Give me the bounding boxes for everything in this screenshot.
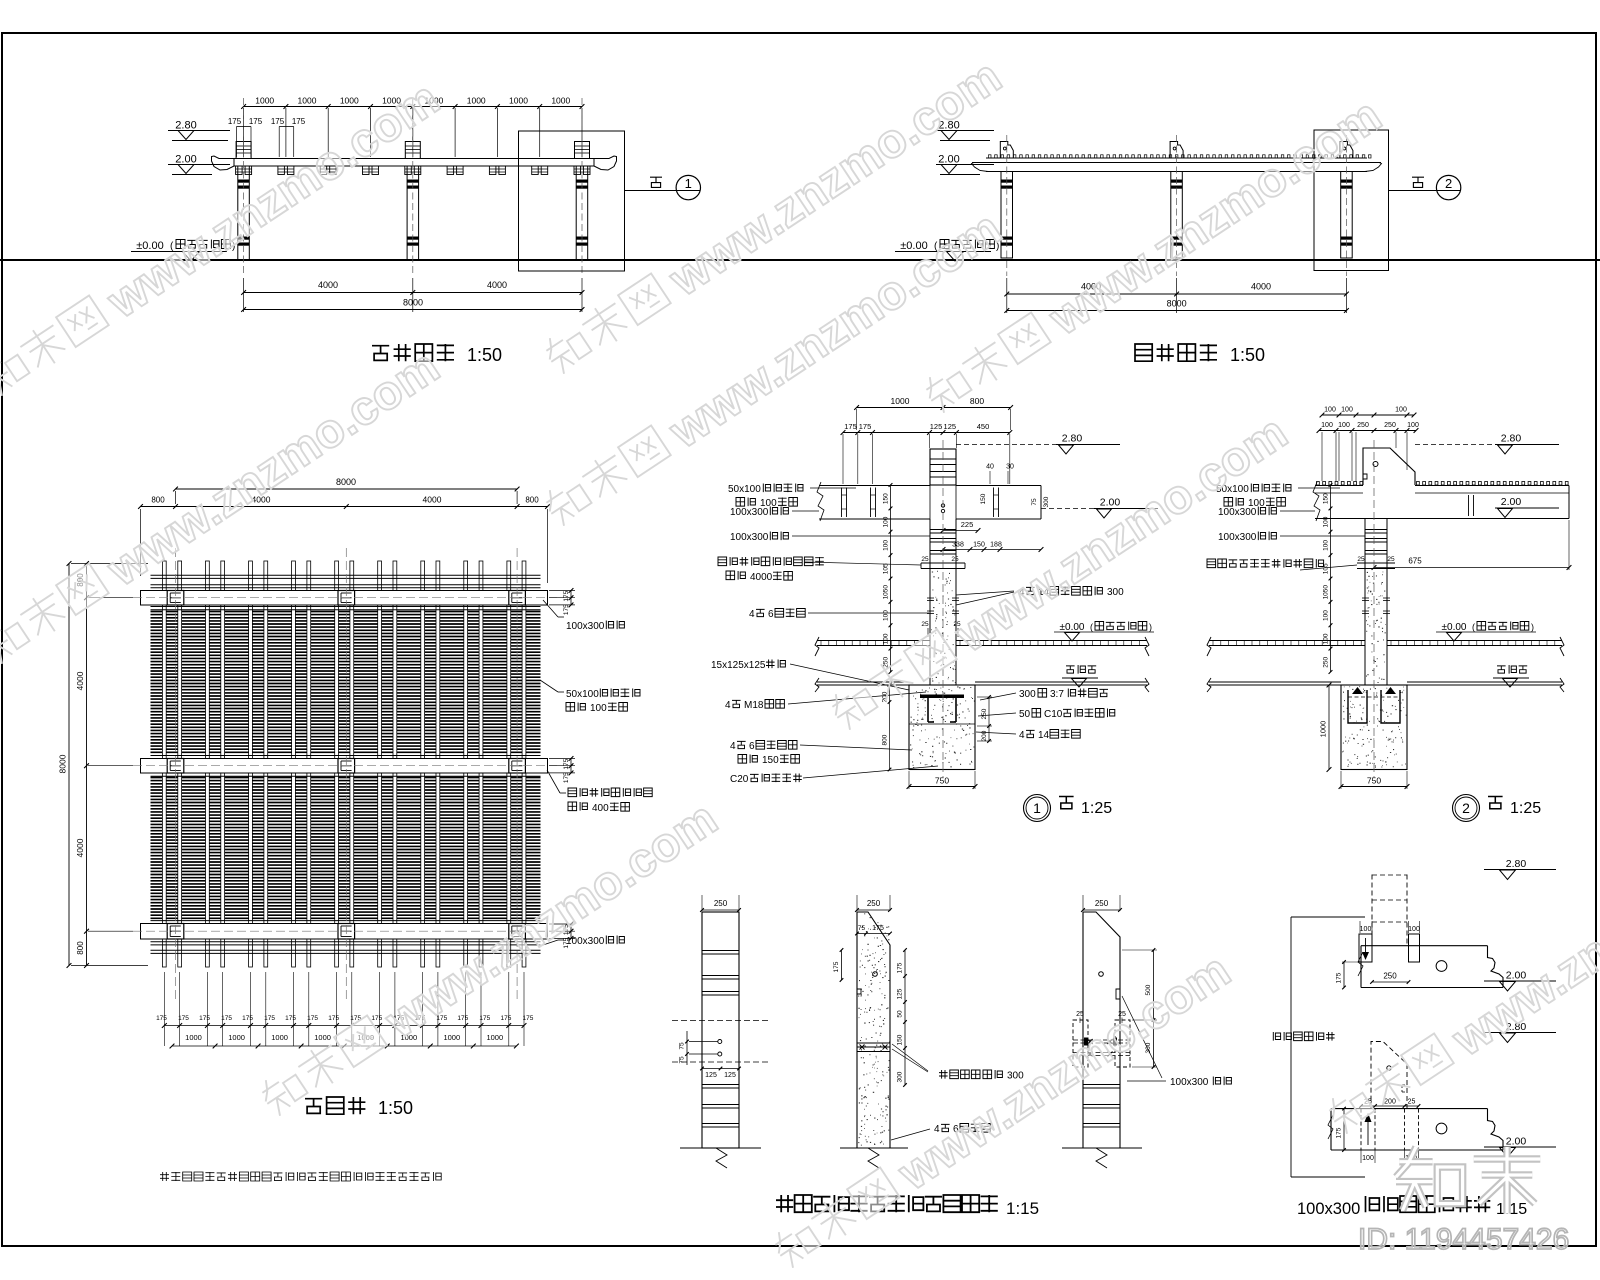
svg-text:±0.00: ±0.00 <box>1060 622 1085 633</box>
svg-text:100x300: 100x300 <box>730 507 769 518</box>
svg-text:ID: 1194457426: ID: 1194457426 <box>1358 1223 1569 1256</box>
svg-text:50x100: 50x100 <box>728 484 761 495</box>
svg-text:1000: 1000 <box>255 96 274 106</box>
svg-text:175: 175 <box>328 1015 339 1022</box>
svg-text:125: 125 <box>705 1072 717 1079</box>
svg-text:100x300: 100x300 <box>566 621 605 632</box>
svg-text:125: 125 <box>724 1072 736 1079</box>
svg-text:338: 338 <box>952 542 964 549</box>
svg-text:C10: C10 <box>1044 709 1063 720</box>
svg-text:2.80: 2.80 <box>1506 858 1527 870</box>
svg-text:105: 105 <box>883 563 890 574</box>
svg-text:8000: 8000 <box>403 298 423 308</box>
svg-text:200: 200 <box>1384 1099 1396 1106</box>
svg-text:250: 250 <box>1384 422 1396 429</box>
svg-text:200: 200 <box>981 730 988 741</box>
svg-text:): ) <box>1531 622 1534 632</box>
svg-text:8000: 8000 <box>1167 299 1187 309</box>
svg-text:50: 50 <box>1019 709 1031 720</box>
svg-text:150: 150 <box>883 493 890 504</box>
svg-text:100x300: 100x300 <box>1170 1077 1209 1088</box>
svg-text:1000: 1000 <box>314 1033 331 1042</box>
svg-text:150: 150 <box>980 493 987 504</box>
svg-text:1000: 1000 <box>891 396 910 406</box>
svg-text:800: 800 <box>970 396 984 406</box>
svg-text:2.80: 2.80 <box>1062 433 1083 445</box>
svg-text:3:7: 3:7 <box>1050 689 1064 700</box>
svg-text:2.00: 2.00 <box>938 154 959 166</box>
svg-text:175: 175 <box>228 117 242 126</box>
svg-text:175: 175 <box>264 1015 275 1022</box>
svg-text:100x300: 100x300 <box>1218 507 1257 518</box>
svg-text:188: 188 <box>990 542 1002 549</box>
svg-text:1:50: 1:50 <box>467 345 502 365</box>
svg-text:300: 300 <box>1019 689 1036 700</box>
svg-text:175: 175 <box>897 962 904 973</box>
svg-text:25: 25 <box>1387 556 1395 563</box>
svg-text:175: 175 <box>199 1015 210 1022</box>
svg-text:175: 175 <box>833 961 840 972</box>
svg-text:175: 175 <box>563 604 570 615</box>
svg-text:1000: 1000 <box>298 96 317 106</box>
svg-text:100: 100 <box>1407 422 1419 429</box>
svg-text:175: 175 <box>844 422 857 431</box>
svg-text:4: 4 <box>1019 730 1025 741</box>
svg-text:100: 100 <box>1321 422 1333 429</box>
svg-text:100x300: 100x300 <box>730 532 769 543</box>
svg-text:175: 175 <box>285 1015 296 1022</box>
svg-text:4000: 4000 <box>423 495 442 505</box>
svg-text:1000: 1000 <box>228 1033 245 1042</box>
svg-text:1:50: 1:50 <box>378 1098 413 1118</box>
svg-text:800: 800 <box>151 496 165 505</box>
svg-text:100: 100 <box>1395 407 1407 414</box>
svg-text:1:25: 1:25 <box>1510 800 1541 817</box>
svg-text:1000: 1000 <box>551 96 570 106</box>
svg-text:300: 300 <box>1107 587 1124 598</box>
svg-text:25: 25 <box>1408 1099 1416 1106</box>
svg-text:75: 75 <box>679 1042 686 1050</box>
svg-text:1050: 1050 <box>883 585 890 600</box>
svg-text:6: 6 <box>768 609 774 620</box>
svg-text:225: 225 <box>961 520 974 529</box>
svg-text:150: 150 <box>762 755 779 766</box>
svg-text:250: 250 <box>1323 656 1330 667</box>
svg-text:175: 175 <box>522 1015 533 1022</box>
svg-text:125: 125 <box>944 422 957 431</box>
svg-text:1000: 1000 <box>185 1033 202 1042</box>
svg-text:175: 175 <box>178 1015 189 1022</box>
svg-text:100: 100 <box>1324 407 1336 414</box>
svg-text:4000: 4000 <box>318 280 338 290</box>
svg-text:8000: 8000 <box>336 477 356 487</box>
svg-text:2.00: 2.00 <box>1501 496 1522 508</box>
svg-text:175: 175 <box>156 1015 167 1022</box>
svg-text:100x300: 100x300 <box>1218 532 1257 543</box>
svg-text:1:15: 1:15 <box>1496 1201 1527 1218</box>
svg-text:1000: 1000 <box>271 1033 288 1042</box>
svg-text:15x125x125: 15x125x125 <box>711 660 766 671</box>
svg-text:1:25: 1:25 <box>1081 800 1112 817</box>
svg-text:75: 75 <box>679 1056 686 1064</box>
svg-text:2: 2 <box>1462 800 1470 816</box>
svg-text:150: 150 <box>897 1034 904 1045</box>
svg-text:4000: 4000 <box>750 572 773 583</box>
svg-text:6: 6 <box>749 741 755 752</box>
svg-text:175: 175 <box>249 117 263 126</box>
svg-text:50: 50 <box>897 1010 904 1018</box>
svg-text:1000: 1000 <box>340 96 359 106</box>
svg-text:175: 175 <box>563 772 570 783</box>
svg-text:100: 100 <box>1323 610 1330 621</box>
svg-text:400: 400 <box>592 803 609 814</box>
svg-text:14: 14 <box>1038 730 1050 741</box>
svg-text:100: 100 <box>1323 540 1330 551</box>
svg-text:300: 300 <box>897 1071 904 1082</box>
svg-text:4: 4 <box>730 741 736 752</box>
svg-text:25: 25 <box>951 556 959 563</box>
svg-text:1000: 1000 <box>1319 721 1328 738</box>
svg-text:800: 800 <box>76 941 85 955</box>
svg-text:175: 175 <box>221 1015 232 1022</box>
svg-text:2: 2 <box>1445 176 1452 191</box>
svg-text:1000: 1000 <box>443 1033 460 1042</box>
svg-text:175: 175 <box>1336 972 1343 983</box>
svg-text:M18: M18 <box>744 700 764 711</box>
svg-text:4000: 4000 <box>1251 282 1271 292</box>
svg-text:175: 175 <box>371 1015 382 1022</box>
svg-text:2.00: 2.00 <box>1506 1136 1527 1148</box>
svg-text:100: 100 <box>1323 633 1330 644</box>
svg-text:175: 175 <box>859 422 872 431</box>
svg-text:175: 175 <box>292 117 306 126</box>
svg-text:175: 175 <box>479 1015 490 1022</box>
svg-text:100: 100 <box>883 516 890 527</box>
svg-text:175: 175 <box>500 1015 511 1022</box>
svg-text:150: 150 <box>1323 493 1330 504</box>
svg-text:250: 250 <box>714 899 728 908</box>
svg-text:2.00: 2.00 <box>175 154 196 166</box>
svg-text:25: 25 <box>1357 556 1365 563</box>
svg-text:250: 250 <box>1357 422 1369 429</box>
svg-text:50x100: 50x100 <box>566 689 599 700</box>
svg-text:25: 25 <box>1076 1011 1084 1018</box>
svg-text:40: 40 <box>986 464 994 471</box>
svg-text:(: ( <box>1090 622 1093 632</box>
svg-text:100: 100 <box>1338 422 1350 429</box>
svg-text:): ) <box>1149 622 1152 632</box>
svg-text:175: 175 <box>457 1015 468 1022</box>
svg-text:25: 25 <box>921 621 929 628</box>
svg-text:C20: C20 <box>730 774 749 785</box>
svg-text:250: 250 <box>981 708 988 719</box>
svg-text:100: 100 <box>590 703 607 714</box>
svg-text:75: 75 <box>858 925 866 932</box>
svg-text:4: 4 <box>749 609 755 620</box>
svg-text:75: 75 <box>1031 498 1038 506</box>
svg-text:250: 250 <box>867 899 881 908</box>
svg-text:100: 100 <box>883 610 890 621</box>
svg-text:100: 100 <box>1408 926 1420 933</box>
svg-text:1000: 1000 <box>467 96 486 106</box>
svg-text:2.80: 2.80 <box>1501 433 1522 445</box>
svg-text:100: 100 <box>1362 1155 1374 1162</box>
svg-text:1050: 1050 <box>1323 585 1330 600</box>
svg-text:2.80: 2.80 <box>175 120 196 132</box>
svg-text:4: 4 <box>725 700 731 711</box>
svg-text:750: 750 <box>935 776 949 786</box>
svg-text:150: 150 <box>973 542 985 549</box>
svg-text:175: 175 <box>1336 1127 1343 1138</box>
svg-text:175: 175 <box>307 1015 318 1022</box>
svg-text:1: 1 <box>685 176 692 191</box>
svg-text:125: 125 <box>897 988 904 999</box>
svg-text:125: 125 <box>930 422 943 431</box>
svg-text:250: 250 <box>883 656 890 667</box>
svg-text:100: 100 <box>1341 407 1353 414</box>
svg-text:800: 800 <box>882 734 889 745</box>
svg-text:450: 450 <box>977 422 990 431</box>
svg-text:800: 800 <box>525 496 539 505</box>
svg-text:1000: 1000 <box>509 96 528 106</box>
svg-text:175: 175 <box>563 758 570 769</box>
svg-text:100: 100 <box>883 540 890 551</box>
svg-text:30: 30 <box>1006 464 1014 471</box>
svg-text:675: 675 <box>1408 557 1422 566</box>
svg-text:250: 250 <box>1383 972 1397 981</box>
svg-text:175: 175 <box>271 117 285 126</box>
svg-text:1:15: 1:15 <box>1006 1199 1039 1218</box>
svg-text:1000: 1000 <box>486 1033 503 1042</box>
svg-text:1:50: 1:50 <box>1230 345 1265 365</box>
svg-text:250: 250 <box>1095 899 1109 908</box>
svg-text:25: 25 <box>921 556 929 563</box>
svg-text:±0.00: ±0.00 <box>1442 622 1467 633</box>
svg-text:100: 100 <box>1323 516 1330 527</box>
svg-text:100: 100 <box>1360 926 1372 933</box>
svg-text:175: 175 <box>872 925 884 932</box>
svg-text:100x300: 100x300 <box>1297 1200 1360 1218</box>
svg-text:4000: 4000 <box>487 280 507 290</box>
svg-text:300: 300 <box>1043 496 1050 507</box>
svg-text:4000: 4000 <box>75 838 85 857</box>
svg-text:175: 175 <box>563 590 570 601</box>
svg-text:(: ( <box>1472 622 1475 632</box>
svg-text:175: 175 <box>242 1015 253 1022</box>
svg-text:8000: 8000 <box>58 754 68 773</box>
svg-text:4000: 4000 <box>75 671 85 690</box>
svg-text:1: 1 <box>1033 800 1041 816</box>
